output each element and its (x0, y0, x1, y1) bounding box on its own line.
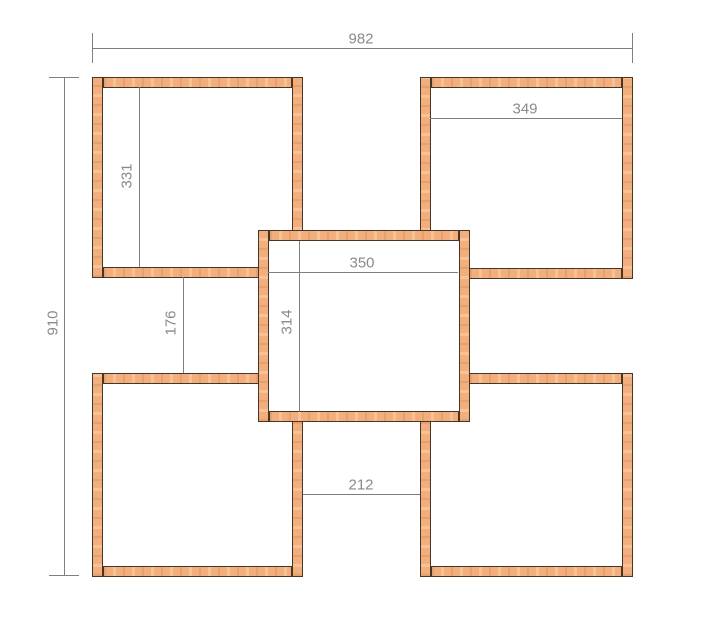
dimension-label-314: 314 (280, 309, 295, 334)
bottom-rail (103, 566, 292, 577)
dimension-end-tick (632, 33, 633, 63)
dimension-label-350: 350 (349, 256, 374, 271)
right-strip (459, 230, 470, 422)
dimension-label-910: 910 (46, 310, 61, 335)
dimension-label-176: 176 (164, 310, 179, 335)
dimension-line-212 (303, 494, 420, 495)
dimension-line-176 (183, 277, 184, 373)
drawing-canvas: 982910349331350314176212 (0, 0, 720, 621)
dimension-line-910 (64, 77, 65, 575)
dimension-line-982 (92, 48, 632, 49)
top-rail (103, 77, 292, 88)
top-rail (431, 77, 622, 88)
bottom-rail (431, 566, 622, 577)
dimension-line-350 (268, 272, 458, 273)
dimension-line-349 (430, 118, 622, 119)
left-strip (258, 230, 269, 422)
right-strip (622, 77, 633, 279)
right-strip (622, 373, 633, 577)
left-strip (92, 77, 103, 278)
dimension-label-212: 212 (348, 478, 373, 493)
dimension-end-tick (49, 575, 79, 576)
dimension-label-331: 331 (120, 163, 135, 188)
top-rail (269, 230, 459, 241)
left-strip (92, 373, 103, 577)
dimension-end-tick (49, 77, 79, 78)
dimension-line-331 (139, 87, 140, 267)
bottom-rail (269, 411, 459, 422)
dimension-label-349: 349 (512, 102, 537, 117)
dimension-line-314 (299, 241, 300, 412)
dimension-end-tick (92, 33, 93, 63)
dimension-label-982: 982 (348, 32, 373, 47)
